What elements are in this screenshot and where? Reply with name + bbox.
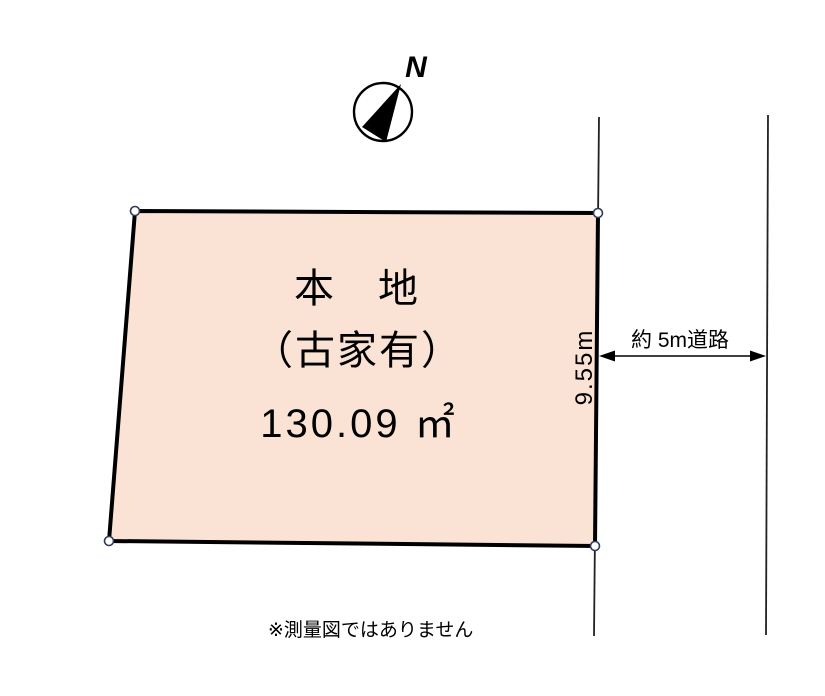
road-far-edge-line [766, 115, 768, 635]
frontage-dimension: 9.55m [571, 329, 598, 406]
site-plan-svg: N 本 地 （古家有） 130.09 ㎡ 9.55m 約 5m道路 ※測量図では… [0, 0, 825, 696]
road-width-label: 約 5m道路 [631, 329, 729, 352]
parcel-shape [109, 211, 598, 546]
arrowhead-right-icon [750, 351, 766, 362]
vertex-marker [594, 209, 603, 218]
vertex-marker [591, 542, 600, 551]
parcel-title: 本 地 [294, 267, 420, 311]
parcel-area: 130.09 ㎡ [260, 402, 457, 446]
disclaimer-note: ※測量図ではありません [268, 619, 473, 641]
compass: N [354, 51, 428, 142]
vertex-marker [105, 537, 114, 546]
parcel-subtitle: （古家有） [253, 329, 463, 373]
vertex-marker [131, 207, 140, 216]
land-plot-diagram: N 本 地 （古家有） 130.09 ㎡ 9.55m 約 5m道路 ※測量図では… [0, 0, 825, 696]
north-label: N [405, 51, 428, 84]
arrowhead-left-icon [599, 351, 615, 362]
road-width-dimension: 約 5m道路 [599, 329, 766, 362]
